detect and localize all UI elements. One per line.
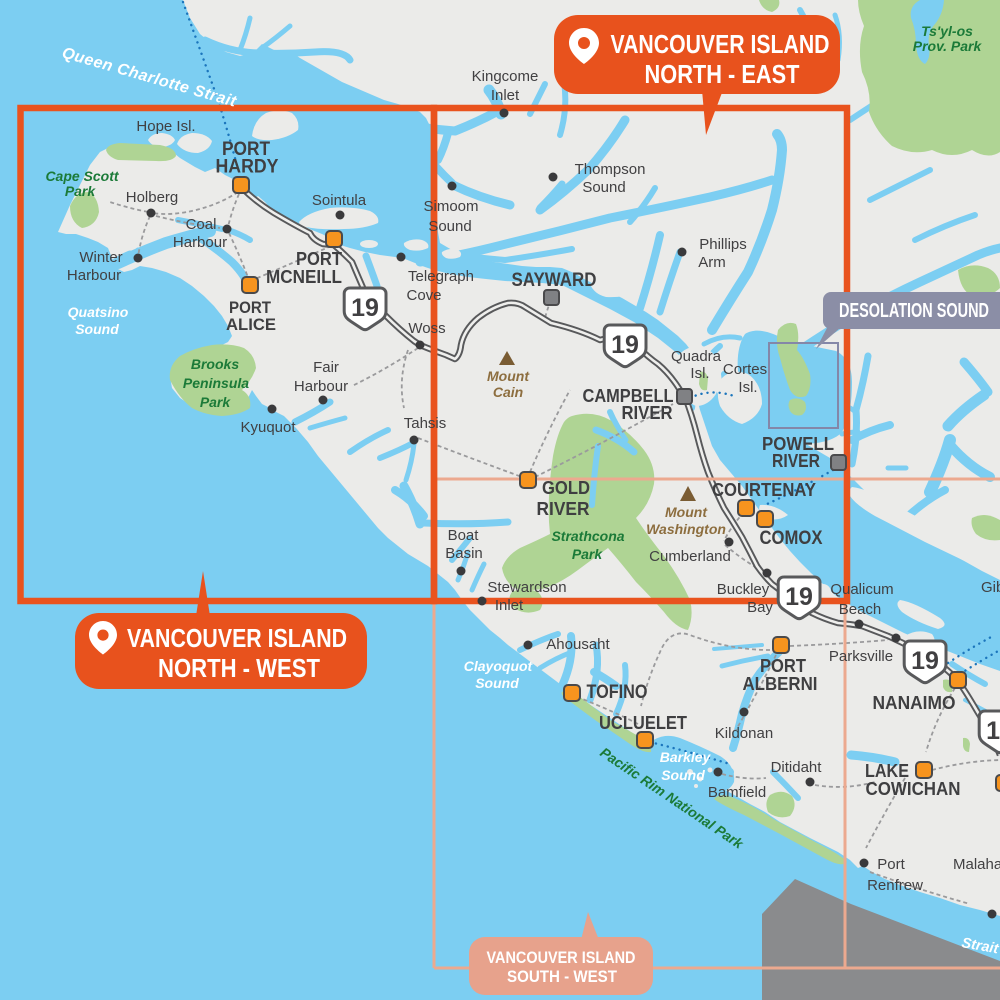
svg-text:Holberg: Holberg bbox=[126, 189, 179, 206]
svg-text:Thompson: Thompson bbox=[575, 161, 646, 178]
svg-text:Woss: Woss bbox=[408, 320, 445, 337]
svg-text:NORTH - WEST: NORTH - WEST bbox=[158, 653, 320, 683]
svg-text:COURTENAY: COURTENAY bbox=[712, 480, 816, 500]
svg-text:UCLUELET: UCLUELET bbox=[599, 713, 687, 733]
svg-text:Washington: Washington bbox=[646, 521, 726, 537]
svg-text:RIVER: RIVER bbox=[537, 499, 590, 519]
svg-text:Ditidaht: Ditidaht bbox=[771, 759, 823, 776]
svg-text:Port: Port bbox=[877, 856, 905, 873]
svg-text:Harbour: Harbour bbox=[173, 234, 227, 251]
svg-text:Harbour: Harbour bbox=[67, 267, 121, 284]
svg-text:19: 19 bbox=[351, 294, 379, 322]
svg-text:Cape Scott: Cape Scott bbox=[45, 168, 119, 184]
svg-text:Inlet: Inlet bbox=[495, 597, 524, 614]
svg-text:PORT: PORT bbox=[760, 656, 806, 676]
svg-text:Isl.: Isl. bbox=[738, 379, 757, 396]
svg-text:Harbour: Harbour bbox=[294, 378, 348, 395]
svg-text:GOLD: GOLD bbox=[542, 478, 590, 498]
svg-text:Clayoquot: Clayoquot bbox=[464, 658, 534, 674]
svg-text:Peninsula: Peninsula bbox=[183, 375, 249, 391]
svg-text:PORT: PORT bbox=[296, 249, 342, 269]
svg-text:Bamfield: Bamfield bbox=[708, 784, 766, 801]
svg-text:Park: Park bbox=[65, 183, 97, 199]
svg-text:Strathcona: Strathcona bbox=[551, 528, 624, 544]
svg-text:Bay: Bay bbox=[747, 599, 773, 616]
svg-text:Park: Park bbox=[572, 546, 604, 562]
svg-text:VANCOUVER ISLAND: VANCOUVER ISLAND bbox=[127, 623, 347, 653]
svg-text:DESOLATION SOUND: DESOLATION SOUND bbox=[839, 300, 989, 322]
svg-text:Qualicum: Qualicum bbox=[830, 581, 893, 598]
svg-text:19: 19 bbox=[986, 717, 1000, 745]
svg-text:SOUTH - WEST: SOUTH - WEST bbox=[507, 967, 618, 986]
svg-text:Parksville: Parksville bbox=[829, 648, 893, 665]
svg-text:NANAIMO: NANAIMO bbox=[873, 693, 956, 713]
svg-text:Basin: Basin bbox=[445, 545, 483, 562]
svg-text:TOFINO: TOFINO bbox=[587, 682, 648, 703]
svg-text:ALBERNI: ALBERNI bbox=[743, 674, 818, 694]
svg-text:RIVER: RIVER bbox=[772, 451, 820, 471]
svg-text:Sointula: Sointula bbox=[312, 192, 367, 209]
svg-text:Cain: Cain bbox=[493, 384, 523, 400]
svg-text:Barkley: Barkley bbox=[660, 749, 712, 765]
svg-text:Mount: Mount bbox=[665, 504, 708, 520]
svg-text:Renfrew: Renfrew bbox=[867, 877, 923, 894]
svg-text:Coal: Coal bbox=[186, 216, 217, 233]
svg-text:Malahat: Malahat bbox=[953, 856, 1000, 873]
svg-text:Beach: Beach bbox=[839, 601, 882, 618]
svg-text:Cove: Cove bbox=[406, 287, 441, 304]
svg-text:Sound: Sound bbox=[582, 179, 625, 196]
svg-text:Isl.: Isl. bbox=[690, 365, 709, 382]
svg-text:Arm: Arm bbox=[698, 254, 726, 271]
svg-text:Fair: Fair bbox=[313, 359, 339, 376]
svg-text:Winter: Winter bbox=[79, 249, 122, 266]
svg-text:Hope Isl.: Hope Isl. bbox=[136, 118, 195, 135]
svg-text:ALICE: ALICE bbox=[226, 315, 276, 334]
svg-text:VANCOUVER ISLAND: VANCOUVER ISLAND bbox=[487, 948, 636, 967]
svg-text:Phillips: Phillips bbox=[699, 236, 747, 253]
svg-text:Cortes: Cortes bbox=[723, 361, 767, 378]
svg-text:Inlet: Inlet bbox=[491, 87, 520, 104]
svg-text:COMOX: COMOX bbox=[760, 528, 823, 549]
svg-text:Sound: Sound bbox=[428, 218, 471, 235]
svg-text:Stewardson: Stewardson bbox=[487, 579, 566, 596]
svg-text:Simoom: Simoom bbox=[423, 198, 478, 215]
svg-text:Sound: Sound bbox=[475, 675, 519, 691]
svg-text:Prov. Park: Prov. Park bbox=[913, 38, 983, 54]
svg-text:Sound: Sound bbox=[661, 767, 705, 783]
svg-text:Quatsino: Quatsino bbox=[68, 304, 129, 320]
svg-text:Kingcome: Kingcome bbox=[472, 68, 539, 85]
svg-text:Park: Park bbox=[200, 394, 232, 410]
svg-text:RIVER: RIVER bbox=[622, 403, 673, 423]
svg-text:Cumberland: Cumberland bbox=[649, 548, 731, 565]
svg-text:Ahousaht: Ahousaht bbox=[546, 636, 610, 653]
svg-text:Ts'yl-os: Ts'yl-os bbox=[921, 23, 973, 39]
svg-text:Brooks: Brooks bbox=[191, 356, 239, 372]
svg-text:Boat: Boat bbox=[448, 527, 480, 544]
svg-text:Telegraph: Telegraph bbox=[408, 268, 474, 285]
svg-text:Kildonan: Kildonan bbox=[715, 725, 773, 742]
svg-text:19: 19 bbox=[611, 331, 639, 359]
svg-text:SAYWARD: SAYWARD bbox=[512, 270, 597, 291]
svg-text:Tahsis: Tahsis bbox=[404, 415, 447, 432]
svg-text:MCNEILL: MCNEILL bbox=[266, 267, 342, 287]
svg-text:HARDY: HARDY bbox=[216, 157, 279, 178]
svg-text:Mount: Mount bbox=[487, 368, 530, 384]
svg-text:Kyuquot: Kyuquot bbox=[240, 419, 296, 436]
svg-text:Sound: Sound bbox=[75, 321, 119, 337]
svg-text:19: 19 bbox=[911, 647, 939, 675]
svg-text:Quadra: Quadra bbox=[671, 348, 722, 365]
svg-text:19: 19 bbox=[785, 583, 813, 611]
svg-text:NORTH - EAST: NORTH - EAST bbox=[645, 59, 800, 89]
svg-text:VANCOUVER ISLAND: VANCOUVER ISLAND bbox=[611, 29, 830, 59]
svg-text:Gibsons: Gibsons bbox=[981, 579, 1000, 596]
svg-text:Buckley: Buckley bbox=[717, 581, 770, 598]
svg-text:COWICHAN: COWICHAN bbox=[866, 779, 961, 799]
svg-text:LAKE: LAKE bbox=[865, 761, 909, 781]
